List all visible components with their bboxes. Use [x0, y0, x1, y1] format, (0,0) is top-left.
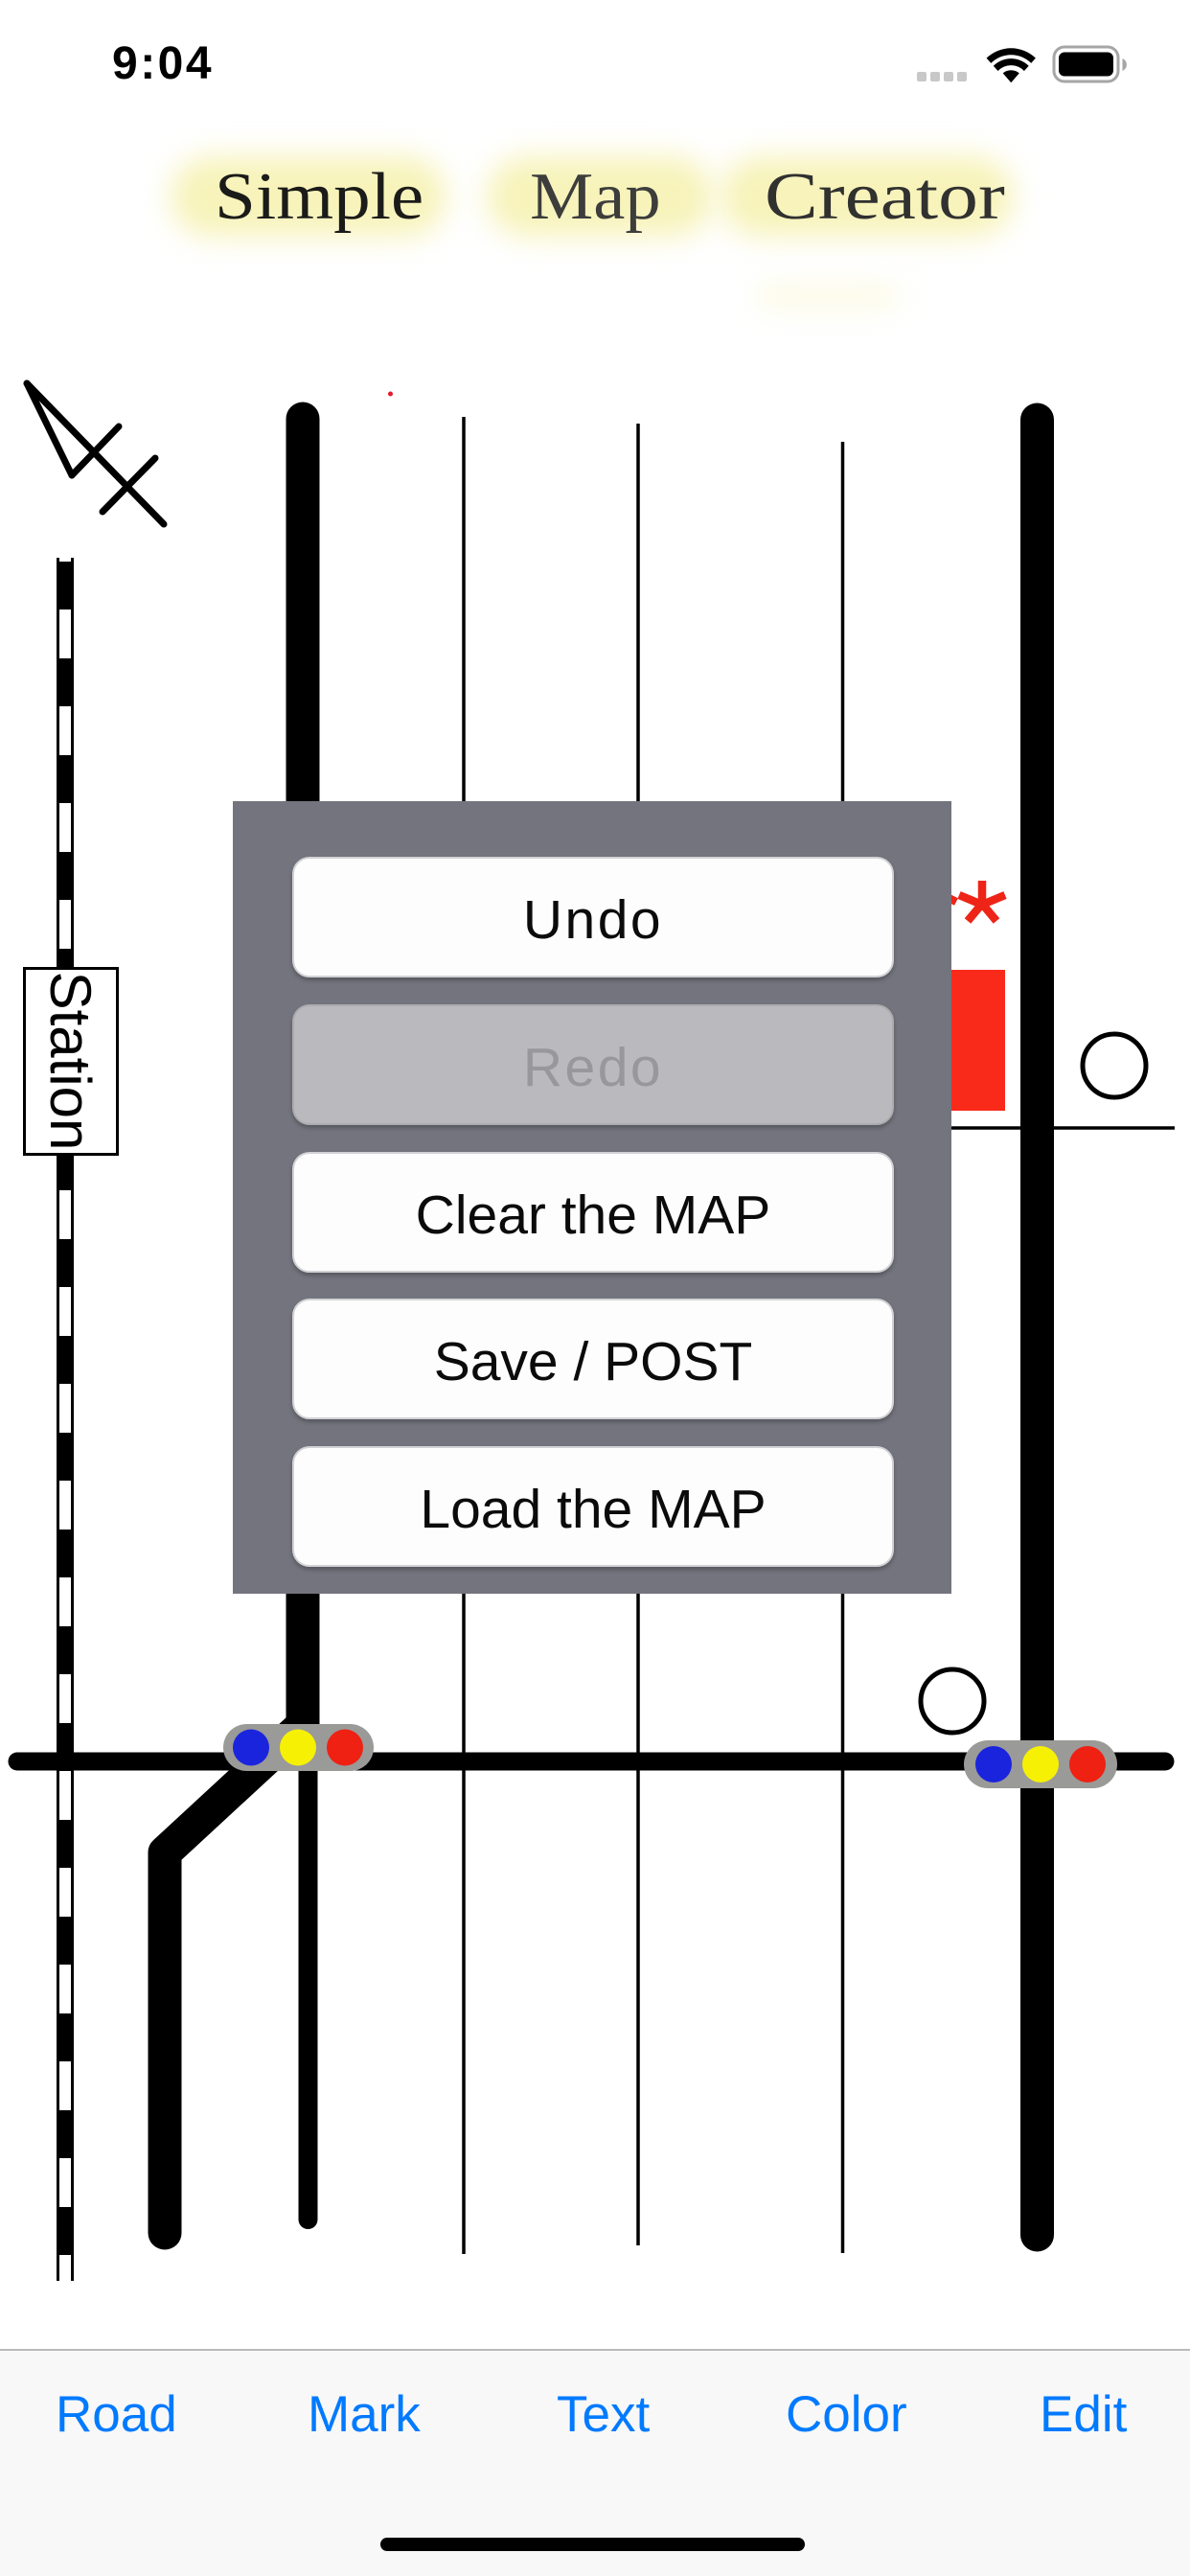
svg-text:Station: Station — [38, 972, 103, 1151]
